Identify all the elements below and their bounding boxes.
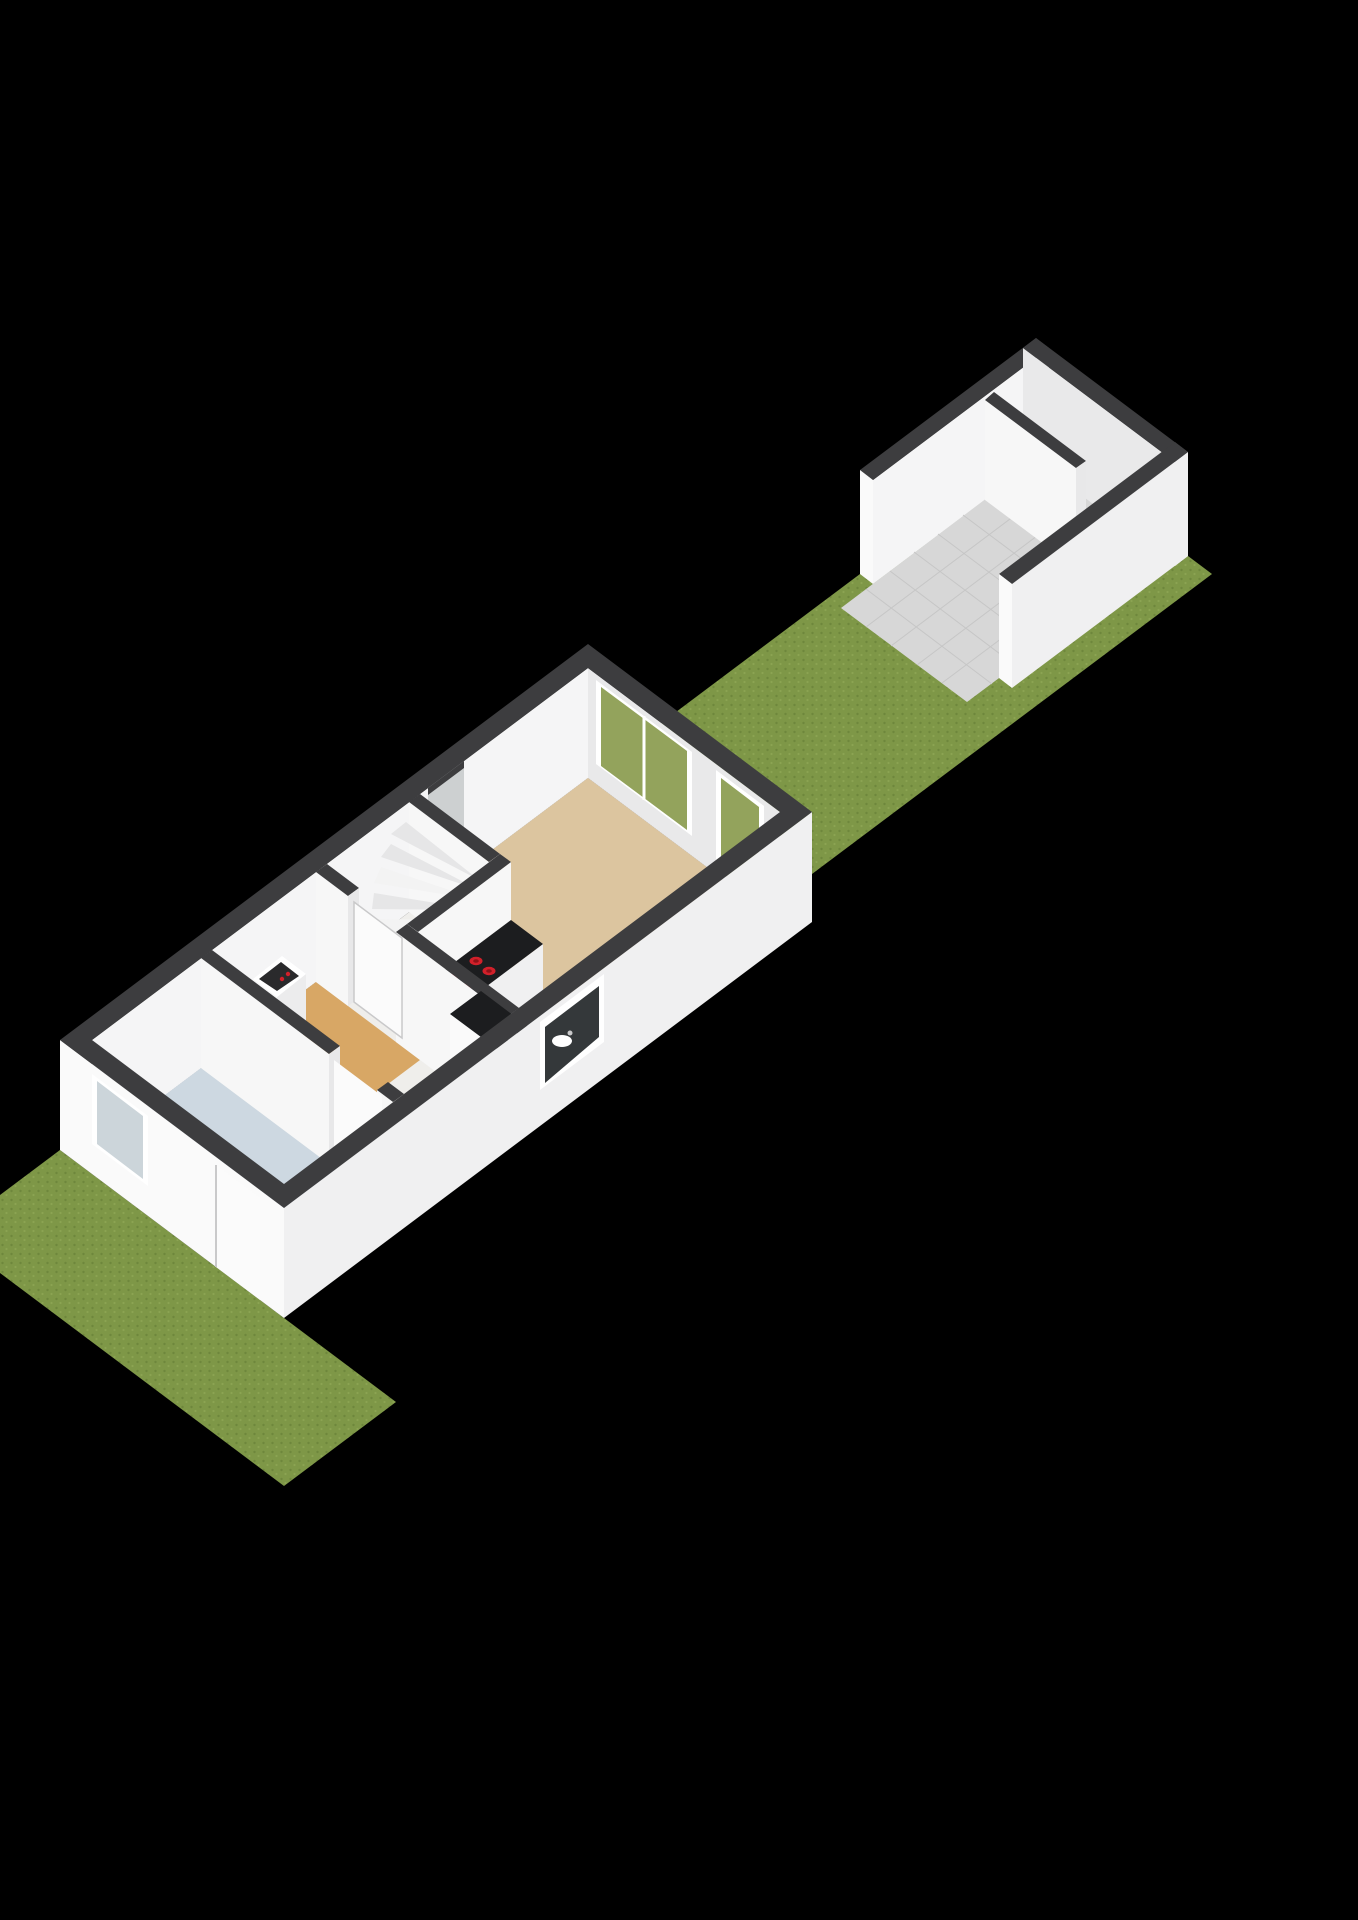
boiler-indicator-dot <box>286 972 290 976</box>
faucet-seen-through-window <box>568 1031 573 1036</box>
cooktop-burner-core <box>486 969 492 973</box>
floorplan-render <box>0 0 1358 1920</box>
sink-seen-through-window <box>552 1035 572 1047</box>
storage-nw-wall-end-face <box>860 470 873 584</box>
boiler-indicator-dot <box>280 977 284 981</box>
cooktop-burner-core <box>473 959 479 963</box>
storage-se-wall-end-face <box>999 574 1012 688</box>
floorplan-stage <box>0 0 1358 1920</box>
